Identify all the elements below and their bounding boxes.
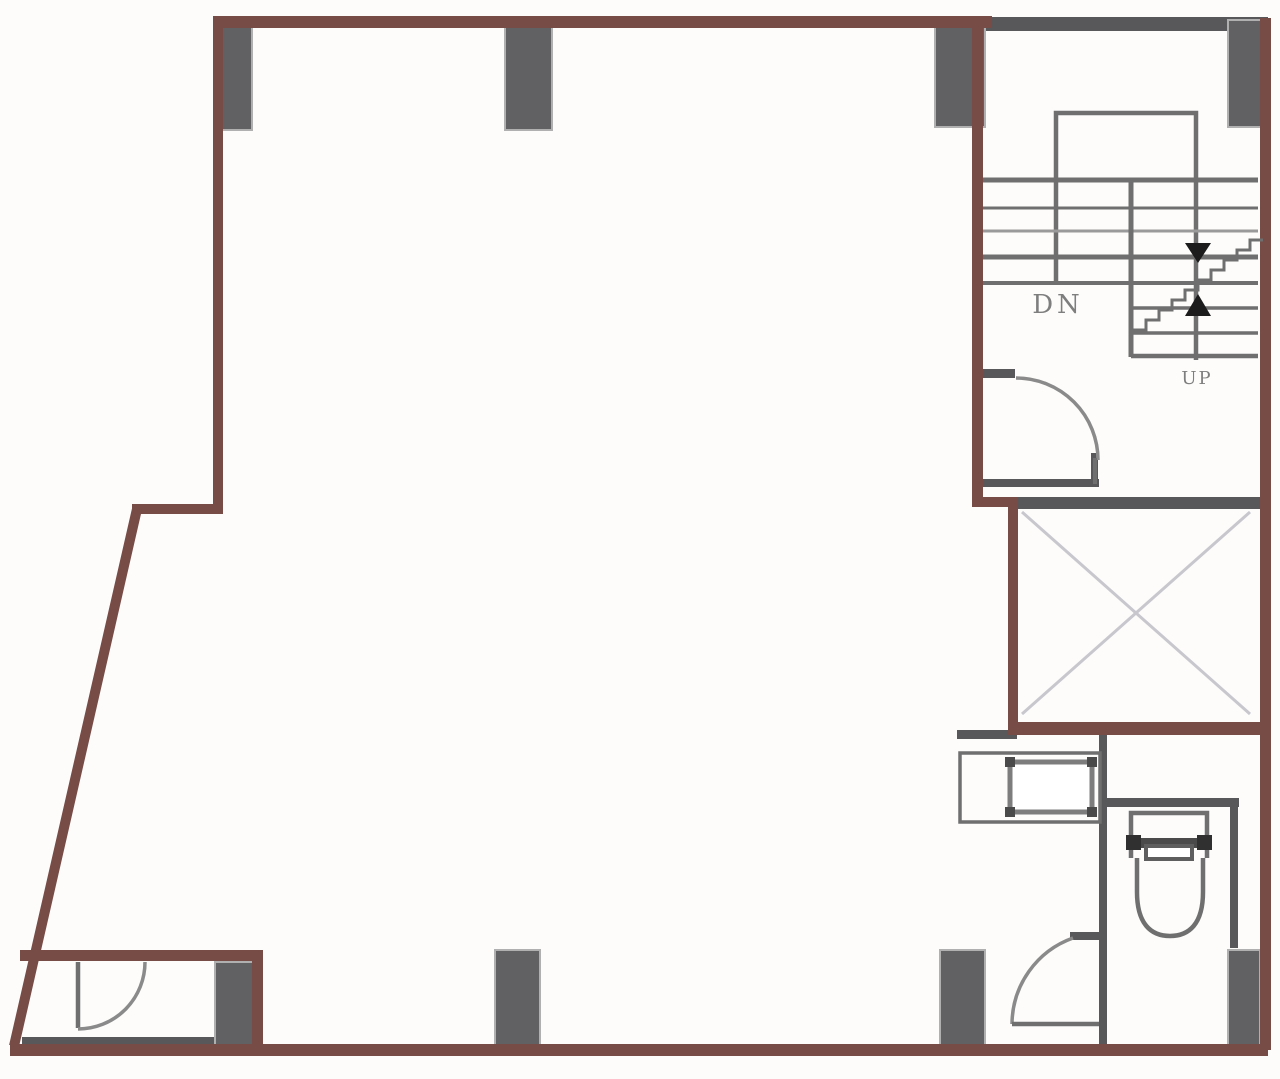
basin-corner-tab: [1087, 757, 1097, 767]
toilet-compartment-right-wall: [1230, 798, 1238, 948]
floor-plan-drawing: DN UP: [0, 0, 1280, 1079]
column-top-left: [218, 26, 252, 130]
elevator-shaft: [1022, 512, 1250, 714]
column-bottom-left: [215, 962, 253, 1047]
toilet-tank: [1146, 846, 1192, 859]
sink-basin: [1010, 762, 1092, 812]
right-wall: [1260, 18, 1271, 1050]
stair-up-label: UP: [1181, 368, 1212, 389]
column-bottom-right: [940, 950, 985, 1047]
left-diagonal-wall: [14, 509, 137, 1046]
gray-walls: [22, 17, 1268, 1050]
toilet-bowl: [1137, 858, 1203, 936]
toilet: [1126, 813, 1212, 936]
stairwell-top-wall: [975, 17, 1268, 31]
stair-down-label: DN: [1032, 290, 1084, 320]
stair-door-swing-arc: [1016, 378, 1098, 460]
toilet-area-door-swing-arc: [1012, 938, 1073, 1024]
small-room-door-swing-arc: [78, 962, 145, 1029]
basin-corner-tab: [1087, 807, 1097, 817]
stairwell-divider-wall: [972, 18, 983, 507]
elevator-bottom-wall: [1008, 722, 1262, 735]
column-bottom-corner: [1228, 950, 1260, 1047]
floor-plan: DN UP: [0, 0, 1280, 1079]
top-wall: [213, 16, 992, 28]
elevator-left-wall: [1008, 503, 1018, 733]
triangle-down-icon: [1185, 243, 1211, 263]
perimeter-walls: [10, 16, 1271, 1056]
toilet-tank-cap: [1197, 835, 1212, 850]
left-upper-wall: [213, 16, 223, 512]
column-bottom-middle: [495, 950, 540, 1047]
toilet-door-stub-wall: [1070, 932, 1106, 940]
triangle-up-icon: [1185, 294, 1211, 316]
basin-corner-tab: [1005, 757, 1015, 767]
elevator-top-wall: [1012, 497, 1268, 509]
staircase: DN UP: [983, 113, 1263, 484]
bottom-wall: [10, 1044, 1268, 1056]
column-top-middle: [505, 27, 552, 130]
basin-corner-tab: [1005, 807, 1015, 817]
stair-landing-outline: [1056, 113, 1196, 360]
stair-lobby-wall: [972, 479, 1099, 487]
small-room-right-wall: [252, 950, 263, 1050]
toilet-compartment-top-wall: [1104, 798, 1239, 807]
column-top-corner: [1228, 20, 1262, 127]
sink-counter: [960, 753, 1100, 822]
small-room-top-wall: [20, 950, 263, 961]
left-step-wall: [132, 504, 223, 514]
toilet-tank-cap: [1126, 835, 1141, 850]
